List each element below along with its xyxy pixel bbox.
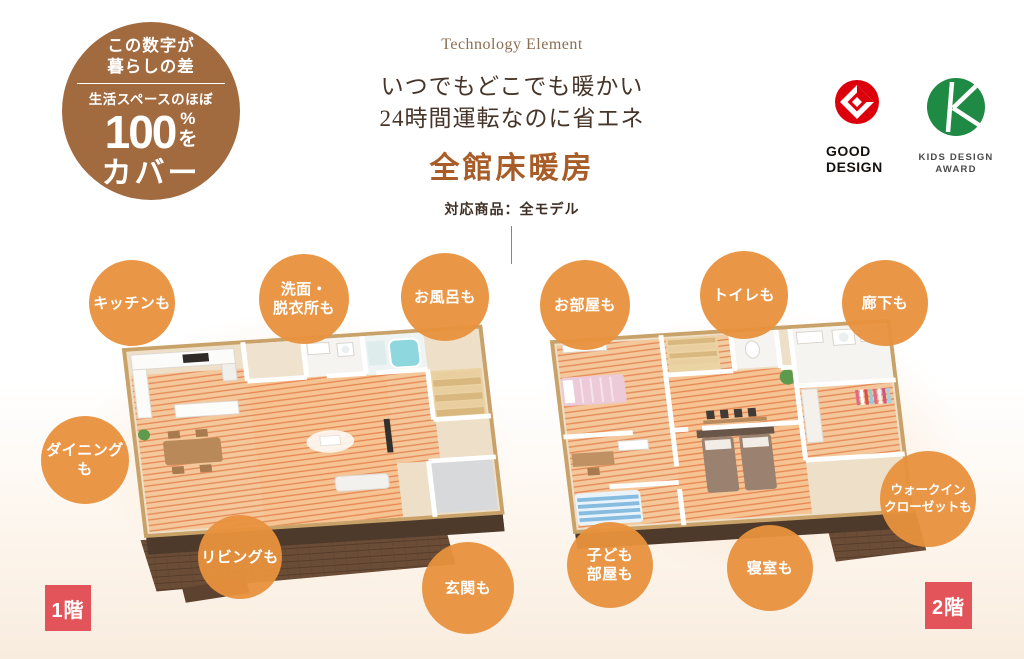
floor2-label: 2階 [925, 582, 972, 629]
badge-line1: この数字が [107, 36, 195, 57]
kids-design-award-logo-icon [927, 78, 985, 136]
good-design-label-line1: GOOD [826, 143, 906, 159]
floor1-label: 1階 [45, 585, 91, 631]
good-design-label-line2: DESIGN [826, 159, 906, 175]
catch-copy-line2: 24時間運転なのに省エネ [332, 103, 692, 135]
section-title: 全館床暖房 [332, 143, 692, 187]
bubble-walk-in-closet: ウォークイン クローゼットも [880, 451, 976, 547]
vertical-divider [511, 226, 512, 264]
coverage-badge: この数字が 暮らしの差 生活スペースのほぼ 100 % を カバー [62, 22, 240, 200]
bubble-washroom: 洗面・ 脱衣所も [259, 254, 349, 344]
badge-divider [77, 83, 225, 84]
bubble-bedroom: 寝室も [727, 525, 813, 611]
eyebrow-text: Technology Element [332, 36, 692, 54]
bubble-toilet: トイレも [700, 251, 788, 339]
bubble-dining: ダイニングも [41, 416, 129, 504]
kids-design-award: KIDS DESIGN AWARD [916, 78, 996, 176]
badge-percent: % [180, 109, 195, 129]
floor-heating-infographic: この数字が 暮らしの差 生活スペースのほぼ 100 % を カバー Techno… [0, 0, 1024, 659]
bubble-entrance: 玄関も [422, 542, 514, 634]
kids-bed [574, 490, 643, 526]
hallway [245, 340, 307, 381]
stair-steps [665, 336, 721, 373]
badge-particle: を [178, 129, 197, 151]
bubble-kids-room: 子ども 部屋も [567, 522, 653, 608]
entrance [429, 459, 498, 513]
bubble-bath: お風呂も [401, 253, 489, 341]
badge-cover-text: カバー [102, 156, 201, 192]
catch-copy-line1: いつでもどこでも暖かい [332, 71, 692, 103]
bubble-kitchen: キッチンも [89, 260, 175, 346]
good-design-logo-icon [835, 80, 879, 124]
badge-number: 100 [105, 109, 176, 155]
compatible-products-note: 対応商品：全モデル [332, 199, 692, 219]
kids-design-label-line2: AWARD [916, 164, 996, 176]
bubble-hallway: 廊下も [842, 260, 928, 346]
badge-line2: 暮らしの差 [107, 57, 195, 78]
badge-subtext: 生活スペースのほぼ [89, 88, 213, 108]
bubble-room: お部屋も [540, 260, 630, 350]
good-design-award: GOOD DESIGN [826, 80, 906, 175]
bubble-living: リビングも [198, 515, 282, 599]
badge-number-row: 100 % を [105, 109, 198, 155]
bathtub [366, 338, 421, 369]
section-header: Technology Element いつでもどこでも暖かい 24時間運転なのに… [332, 36, 692, 219]
kids-design-label-line1: KIDS DESIGN [916, 152, 996, 164]
